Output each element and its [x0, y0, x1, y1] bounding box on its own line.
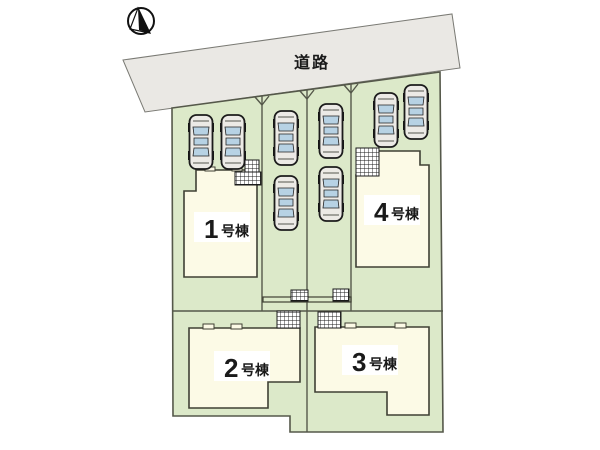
balcony-hatch [235, 172, 261, 185]
car-icon [373, 93, 399, 147]
car-icon [403, 85, 429, 139]
porch-hatch [318, 312, 341, 328]
building-1: 1 号棟 [184, 160, 261, 277]
building-1-number: 1 [204, 214, 218, 244]
building-2-tab [231, 324, 242, 329]
building-4: 4 号棟 [356, 148, 429, 267]
car-icon [318, 104, 344, 158]
building-3-tab [395, 323, 406, 328]
car-icon [220, 115, 246, 169]
road-label: 道路 [294, 53, 330, 72]
building-4-suffix: 号棟 [391, 206, 420, 222]
building-2-suffix: 号棟 [241, 362, 270, 378]
north-arrow-icon [128, 8, 154, 34]
site-plan: 道路 1 号棟 4 号棟 [0, 0, 600, 450]
entrance-step-hatch [333, 289, 349, 301]
building-4-number: 4 [374, 197, 389, 227]
porch-hatch [277, 311, 300, 328]
entrance-step-hatch [291, 290, 308, 301]
car-icon [273, 111, 299, 165]
building-3-suffix: 号棟 [369, 356, 398, 372]
car-icon [188, 115, 214, 169]
building-1-suffix: 号棟 [221, 223, 250, 239]
balcony-hatch [356, 148, 379, 176]
building-2-number: 2 [224, 353, 238, 383]
car-icon [318, 167, 344, 221]
building-3-tab [345, 323, 356, 328]
site-plan-svg: 道路 1 号棟 4 号棟 [0, 0, 600, 450]
car-icon [273, 176, 299, 230]
building-2-tab [203, 324, 214, 329]
building-3-number: 3 [352, 347, 366, 377]
